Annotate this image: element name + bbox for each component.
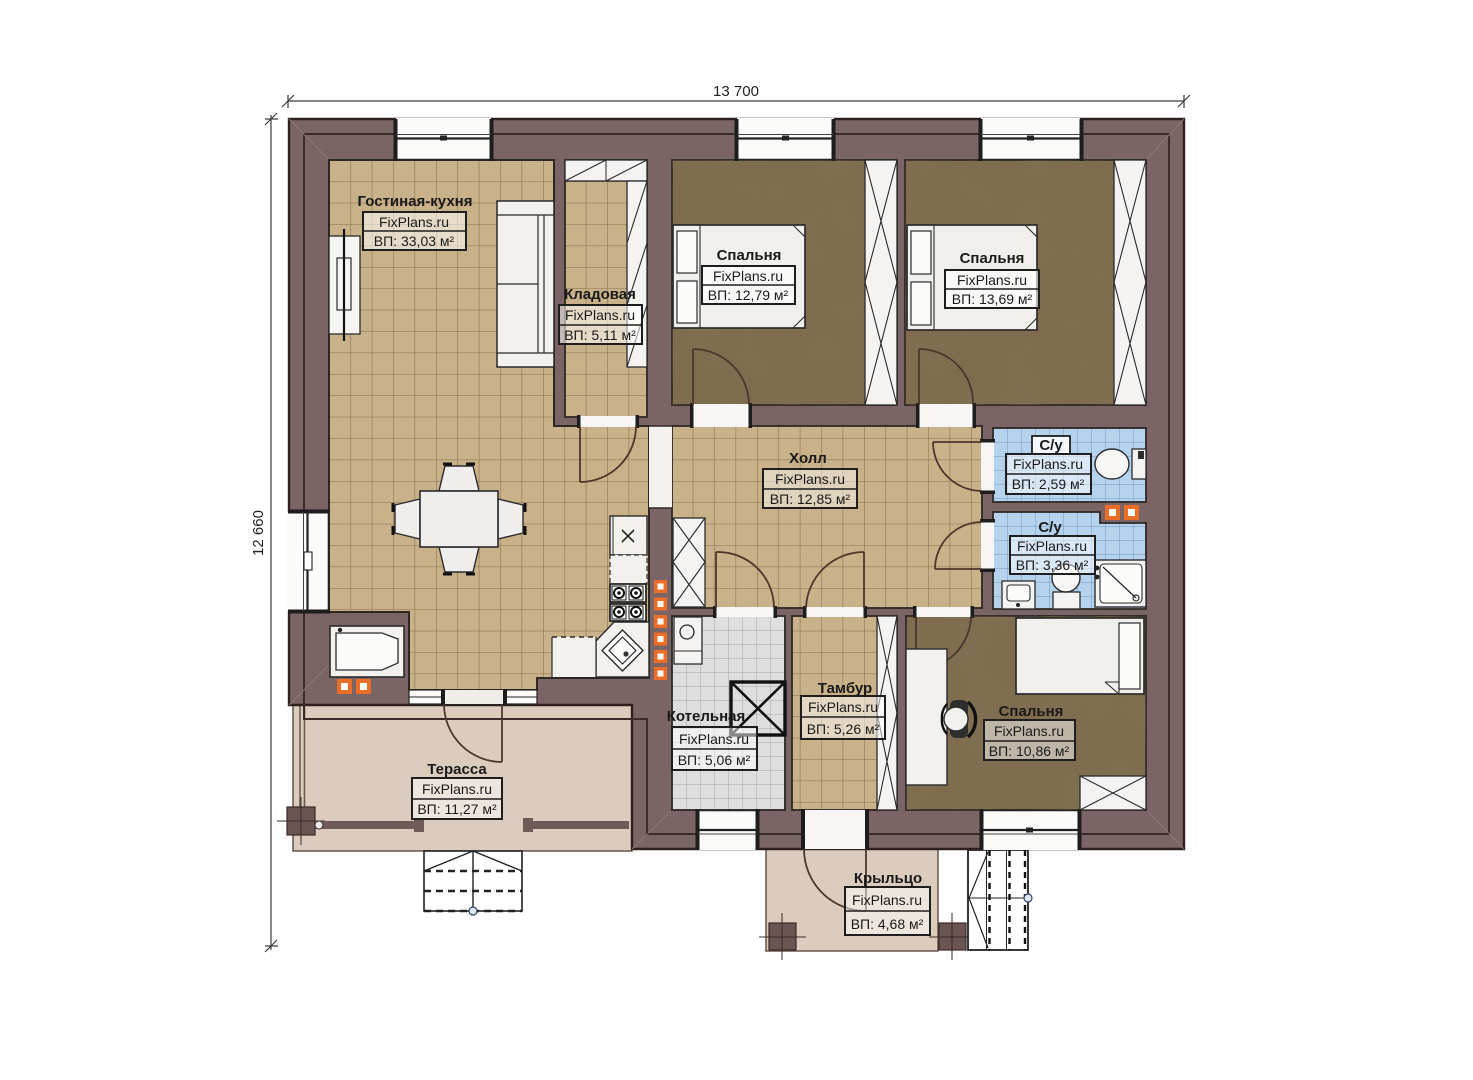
svg-text:ВП: 4,68 м²: ВП: 4,68 м² xyxy=(851,916,924,932)
svg-text:ВП: 12,85 м²: ВП: 12,85 м² xyxy=(770,491,851,507)
svg-text:FixPlans.ru: FixPlans.ru xyxy=(852,892,922,908)
svg-text:Котельная: Котельная xyxy=(667,708,746,725)
svg-text:Спальня: Спальня xyxy=(960,250,1025,267)
svg-text:ВП: 10,86 м²: ВП: 10,86 м² xyxy=(989,743,1070,759)
svg-text:ВП: 2,59 м²: ВП: 2,59 м² xyxy=(1012,476,1085,492)
svg-text:FixPlans.ru: FixPlans.ru xyxy=(1013,456,1083,472)
svg-text:ВП: 5,06 м²: ВП: 5,06 м² xyxy=(678,752,751,768)
svg-text:Гостиная-кухня: Гостиная-кухня xyxy=(358,193,473,210)
svg-text:FixPlans.ru: FixPlans.ru xyxy=(679,731,749,747)
svg-text:FixPlans.ru: FixPlans.ru xyxy=(713,268,783,284)
svg-text:ВП: 13,69 м²: ВП: 13,69 м² xyxy=(952,291,1033,307)
svg-text:Крыльцо: Крыльцо xyxy=(854,870,922,887)
svg-text:Спальня: Спальня xyxy=(717,247,782,264)
svg-text:Тамбур: Тамбур xyxy=(818,680,872,697)
svg-text:ВП: 33,03 м²: ВП: 33,03 м² xyxy=(374,233,455,249)
svg-text:ВП: 3,36 м²: ВП: 3,36 м² xyxy=(1016,557,1089,573)
svg-text:FixPlans.ru: FixPlans.ru xyxy=(565,307,635,323)
svg-text:FixPlans.ru: FixPlans.ru xyxy=(994,723,1064,739)
svg-text:С/у: С/у xyxy=(1039,437,1063,454)
svg-text:12 660: 12 660 xyxy=(250,510,267,556)
svg-text:ВП: 12,79 м²: ВП: 12,79 м² xyxy=(708,287,789,303)
svg-text:С/у: С/у xyxy=(1038,519,1062,536)
svg-text:FixPlans.ru: FixPlans.ru xyxy=(775,471,845,487)
svg-text:FixPlans.ru: FixPlans.ru xyxy=(379,214,449,230)
svg-text:FixPlans.ru: FixPlans.ru xyxy=(1017,538,1087,554)
svg-text:Спальня: Спальня xyxy=(999,703,1064,720)
svg-text:ВП: 5,26 м²: ВП: 5,26 м² xyxy=(807,721,880,737)
svg-text:Терасса: Терасса xyxy=(427,761,487,778)
svg-text:Холл: Холл xyxy=(789,450,827,467)
svg-text:FixPlans.ru: FixPlans.ru xyxy=(808,699,878,715)
svg-text:13 700: 13 700 xyxy=(713,83,759,100)
svg-text:FixPlans.ru: FixPlans.ru xyxy=(422,781,492,797)
svg-text:ВП: 5,11 м²: ВП: 5,11 м² xyxy=(564,327,636,343)
svg-text:Кладовая: Кладовая xyxy=(564,286,636,303)
svg-text:FixPlans.ru: FixPlans.ru xyxy=(957,272,1027,288)
svg-text:ВП: 11,27 м²: ВП: 11,27 м² xyxy=(417,801,497,817)
